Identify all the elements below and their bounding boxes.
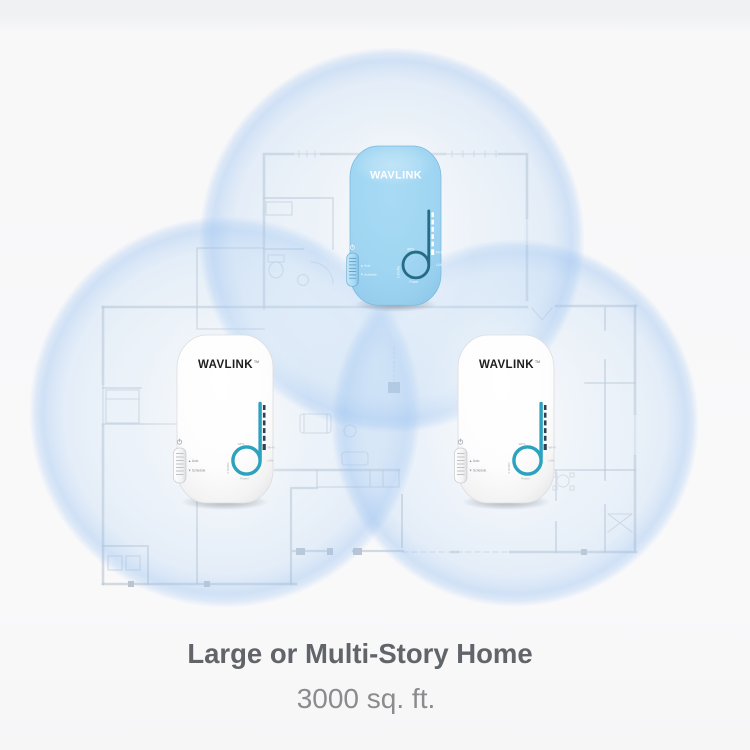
svg-text:WAVLINK: WAVLINK xyxy=(370,170,422,182)
svg-text:2.4G/5G: 2.4G/5G xyxy=(396,266,400,279)
svg-text:▲ Auto: ▲ Auto xyxy=(360,263,370,267)
svg-text:▼ Schedule: ▼ Schedule xyxy=(188,469,206,473)
svg-text:WAVLINK: WAVLINK xyxy=(198,359,253,371)
svg-text:▼ Schedule: ▼ Schedule xyxy=(360,272,377,276)
svg-text:WPS: WPS xyxy=(238,442,245,446)
svg-text:TM: TM xyxy=(254,360,259,364)
svg-text:▼ Schedule: ▼ Schedule xyxy=(469,469,487,473)
svg-text:Wi-Fi: Wi-Fi xyxy=(549,446,556,450)
svg-text:WAVLINK: WAVLINK xyxy=(479,359,534,371)
svg-text:Large or Multi-Story Home: Large or Multi-Story Home xyxy=(187,638,532,669)
svg-text:2.4G/5G: 2.4G/5G xyxy=(507,462,511,474)
svg-text:Wi-Fi: Wi-Fi xyxy=(436,251,444,255)
svg-text:▲ Auto: ▲ Auto xyxy=(469,459,480,463)
svg-text:WPS: WPS xyxy=(519,442,526,446)
svg-text:3000 sq. ft.: 3000 sq. ft. xyxy=(297,683,436,714)
svg-text:WPS: WPS xyxy=(407,247,414,251)
svg-text:TM: TM xyxy=(535,360,540,364)
svg-text:Power: Power xyxy=(240,477,249,481)
svg-text:LAN: LAN xyxy=(268,459,274,463)
svg-text:▲ Auto: ▲ Auto xyxy=(188,459,199,463)
svg-text:Power: Power xyxy=(409,280,419,284)
svg-text:Wi-Fi: Wi-Fi xyxy=(268,446,275,450)
svg-text:LAN: LAN xyxy=(436,263,443,267)
svg-text:2.4G/5G: 2.4G/5G xyxy=(226,462,230,474)
svg-text:LAN: LAN xyxy=(549,459,555,463)
svg-text:Power: Power xyxy=(521,477,530,481)
